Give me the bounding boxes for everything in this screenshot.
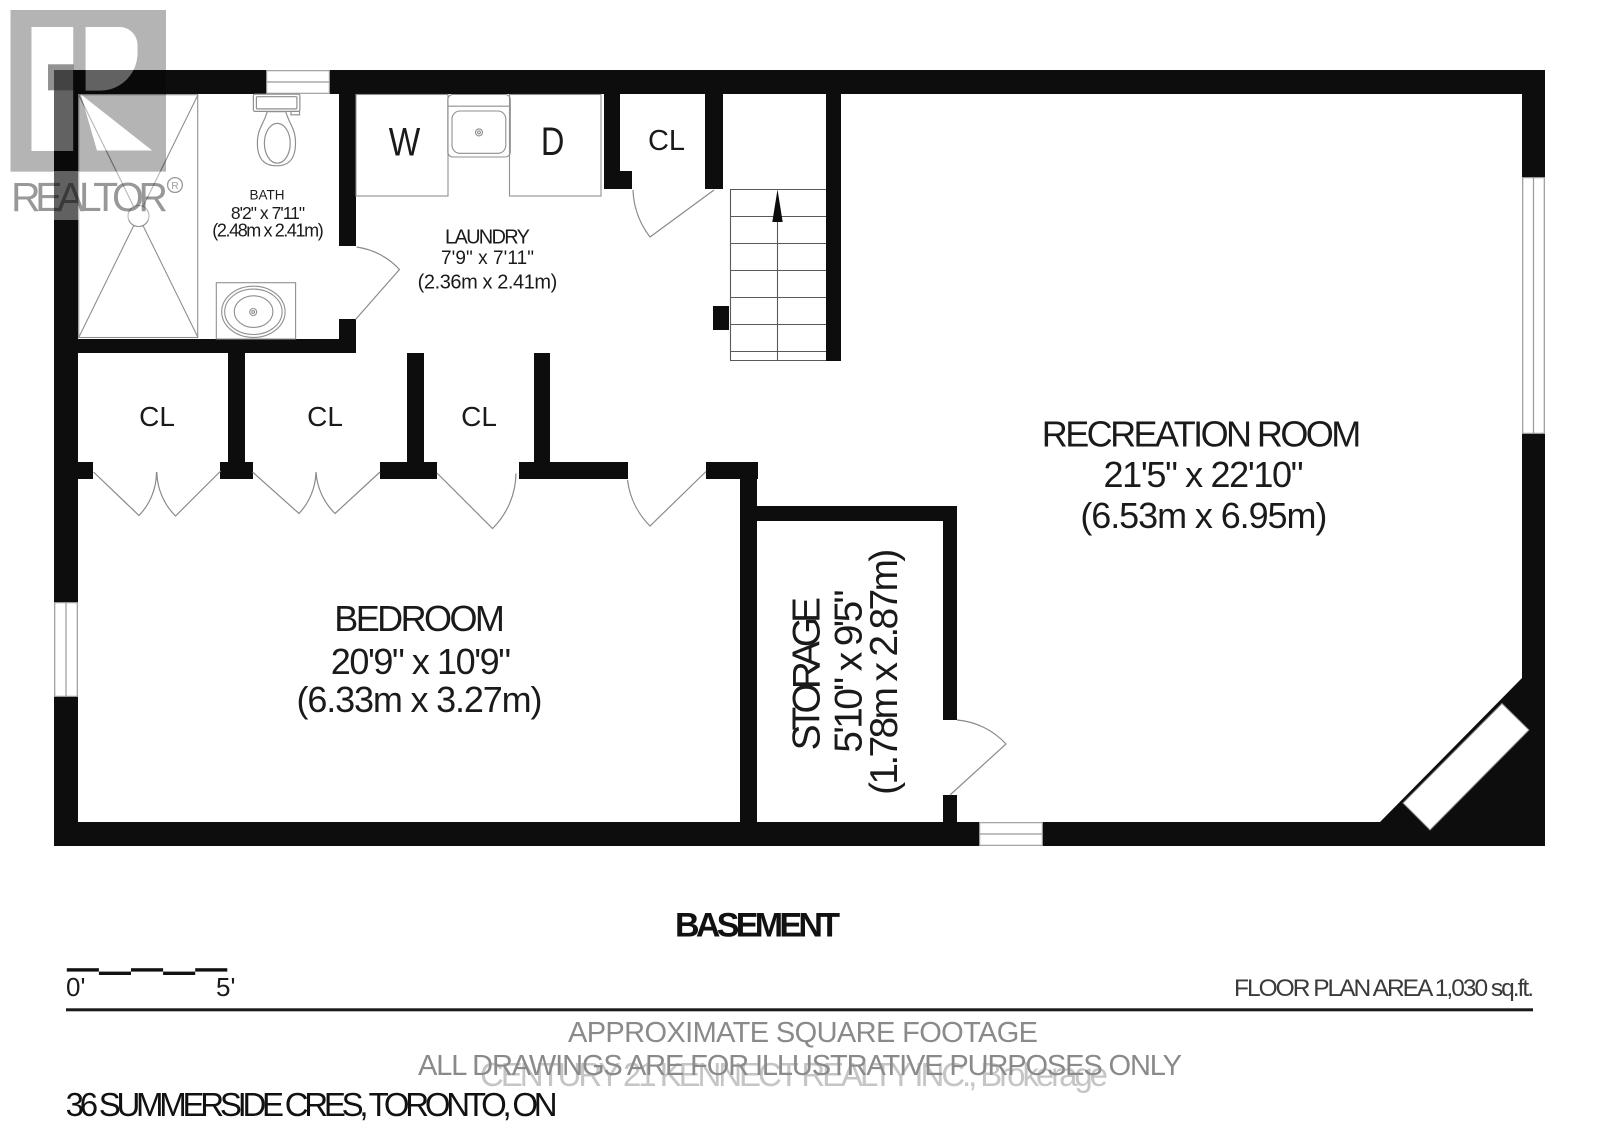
svg-text:ALL DRAWINGS ARE FOR ILLUSTRAT: ALL DRAWINGS ARE FOR ILLUSTRATIVE PURPOS…: [418, 1050, 1182, 1082]
svg-text:20'9" x 10'9": 20'9" x 10'9": [331, 641, 511, 682]
svg-text:(6.33m x 3.27m): (6.33m x 3.27m): [297, 679, 543, 720]
svg-text:BEDROOM: BEDROOM: [334, 598, 505, 639]
svg-text:36 SUMMERSIDE CRES, TORONTO, O: 36 SUMMERSIDE CRES, TORONTO, ON: [66, 1086, 558, 1123]
svg-text:CL: CL: [307, 401, 343, 432]
svg-text:0': 0': [66, 972, 85, 1002]
svg-text:(2.36m x 2.41m): (2.36m x 2.41m): [418, 272, 558, 294]
svg-text:BATH: BATH: [249, 188, 284, 203]
svg-text:(6.53m x 6.95m): (6.53m x 6.95m): [1080, 495, 1327, 536]
svg-text:(2.48m x 2.41m): (2.48m x 2.41m): [212, 221, 323, 241]
svg-text:FLOOR PLAN AREA 1,030 sq.ft.: FLOOR PLAN AREA 1,030 sq.ft.: [1234, 975, 1534, 1002]
svg-text:D: D: [541, 120, 565, 164]
svg-text:5': 5': [216, 972, 235, 1002]
svg-text:CL: CL: [461, 401, 497, 432]
svg-text:APPROXIMATE SQUARE FOOTAGE: APPROXIMATE SQUARE FOOTAGE: [568, 1017, 1038, 1049]
svg-text:CL: CL: [139, 401, 175, 432]
svg-text:RECREATION ROOM: RECREATION ROOM: [1042, 414, 1361, 455]
svg-text:REALTOR: REALTOR: [11, 174, 168, 220]
svg-text:R: R: [171, 181, 178, 192]
svg-text:W: W: [389, 121, 421, 165]
svg-text:21'5" x 22'10": 21'5" x 22'10": [1104, 454, 1304, 495]
svg-text:LAUNDRY: LAUNDRY: [445, 227, 530, 249]
svg-text:CL: CL: [648, 125, 685, 157]
svg-text:7'9" x 7'11": 7'9" x 7'11": [441, 248, 534, 269]
svg-text:BASEMENT: BASEMENT: [675, 907, 840, 945]
svg-text:(1.78m x 2.87m): (1.78m x 2.87m): [863, 549, 906, 795]
svg-text:STORAGE: STORAGE: [786, 597, 829, 750]
